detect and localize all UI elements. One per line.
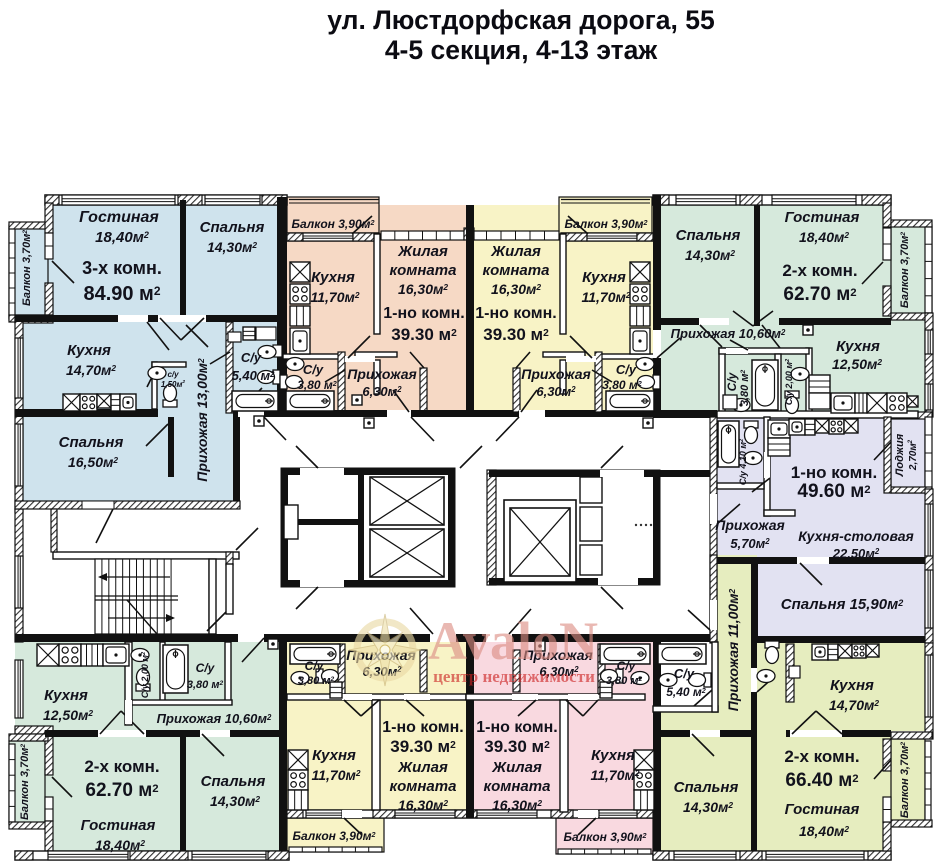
svg-text:Кухня: Кухня bbox=[836, 338, 880, 355]
svg-text:5,40 м2: 5,40 м2 bbox=[232, 368, 276, 383]
svg-text:14,70м2: 14,70м2 bbox=[66, 362, 116, 378]
svg-text:1-но комн.: 1-но комн. bbox=[382, 719, 463, 736]
svg-text:2-х комн.: 2-х комн. bbox=[84, 757, 159, 776]
svg-text:комната: комната bbox=[483, 262, 550, 279]
svg-text:Спальня 15,90м2: Спальня 15,90м2 bbox=[781, 596, 903, 613]
svg-text:16,30м2: 16,30м2 bbox=[398, 797, 448, 813]
svg-text:Прихожая 13,00м2: Прихожая 13,00м2 bbox=[194, 358, 210, 482]
svg-text:1-но комн.: 1-но комн. bbox=[475, 305, 556, 322]
svg-text:центр недвижимости: центр недвижимости bbox=[433, 667, 595, 686]
svg-text:3,80 м2: 3,80 м2 bbox=[739, 370, 751, 407]
svg-text:2,70м2: 2,70м2 bbox=[908, 439, 919, 471]
svg-text:Жилая: Жилая bbox=[491, 759, 542, 776]
svg-text:1-но комн.: 1-но комн. bbox=[791, 463, 878, 482]
svg-text:Гостиная: Гостиная bbox=[785, 801, 860, 818]
svg-text:11,70м2: 11,70м2 bbox=[590, 767, 639, 783]
svg-text:Жилая: Жилая bbox=[490, 243, 541, 260]
svg-text:Спальня: Спальня bbox=[676, 227, 741, 244]
svg-text:12,50м2: 12,50м2 bbox=[832, 356, 882, 372]
svg-text:Кухня: Кухня bbox=[582, 269, 626, 286]
svg-text:Прихожая 10,60м2: Прихожая 10,60м2 bbox=[157, 711, 272, 726]
svg-text:18,40м2: 18,40м2 bbox=[799, 823, 849, 839]
svg-text:Гостиная: Гостиная bbox=[785, 209, 860, 226]
svg-text:3,80 м2: 3,80 м2 bbox=[602, 378, 642, 392]
svg-text:С/у: С/у bbox=[674, 666, 695, 681]
svg-text:С/у: С/у bbox=[196, 661, 216, 675]
svg-text:39.30 м2: 39.30 м2 bbox=[483, 325, 549, 344]
svg-text:1,50м2: 1,50м2 bbox=[161, 379, 186, 389]
svg-text:Кухня-столовая: Кухня-столовая bbox=[798, 528, 914, 544]
svg-text:11,70м2: 11,70м2 bbox=[581, 289, 630, 305]
svg-text:5,70м2: 5,70м2 bbox=[730, 536, 770, 551]
svg-text:С/у: С/у bbox=[725, 371, 739, 391]
svg-text:39.30 м2: 39.30 м2 bbox=[390, 737, 456, 756]
svg-text:1-но комн.: 1-но комн. bbox=[383, 305, 464, 322]
svg-text:Прихожая: Прихожая bbox=[521, 366, 591, 382]
svg-text:Балкон 3,90м2: Балкон 3,90м2 bbox=[291, 217, 374, 231]
svg-text:С/у 2,00 м2: С/у 2,00 м2 bbox=[140, 652, 150, 698]
svg-text:16,30м2: 16,30м2 bbox=[398, 281, 448, 297]
svg-text:3,80 м2: 3,80 м2 bbox=[297, 378, 337, 392]
svg-text:ул. Люстдорфская дорога, 55: ул. Люстдорфская дорога, 55 bbox=[327, 5, 715, 35]
svg-text:Спальня: Спальня bbox=[201, 773, 266, 790]
svg-text:84.90 м2: 84.90 м2 bbox=[83, 283, 160, 305]
svg-text:39.30 м2: 39.30 м2 bbox=[484, 737, 550, 756]
svg-text:6,30м2: 6,30м2 bbox=[362, 384, 402, 399]
svg-text:2-х комн.: 2-х комн. bbox=[784, 747, 859, 766]
svg-text:16,50м2: 16,50м2 bbox=[68, 454, 118, 470]
svg-text:Прихожая: Прихожая bbox=[347, 366, 417, 382]
svg-text:Балкон 3,70м2: Балкон 3,70м2 bbox=[899, 232, 911, 308]
svg-text:Кухня: Кухня bbox=[591, 747, 635, 764]
svg-text:16,30м2: 16,30м2 bbox=[491, 281, 541, 297]
svg-text:комната: комната bbox=[390, 778, 457, 795]
svg-text:С/у 4,10 м2: С/у 4,10 м2 bbox=[738, 439, 748, 485]
svg-text:3,80 м2: 3,80 м2 bbox=[187, 679, 224, 691]
svg-text:Спальня: Спальня bbox=[674, 779, 739, 796]
svg-text:14,30м2: 14,30м2 bbox=[207, 239, 257, 255]
svg-text:Балкон 3,70м2: Балкон 3,70м2 bbox=[899, 742, 911, 818]
svg-text:14,70м2: 14,70м2 bbox=[829, 697, 879, 713]
svg-text:5,40 м2: 5,40 м2 bbox=[666, 685, 706, 699]
svg-text:2-х комн.: 2-х комн. bbox=[782, 261, 857, 280]
svg-text:Спальня: Спальня bbox=[200, 219, 265, 236]
svg-text:3,80 м2: 3,80 м2 bbox=[298, 675, 335, 687]
svg-text:11,70м2: 11,70м2 bbox=[310, 289, 359, 305]
svg-text:С/у: С/у bbox=[305, 659, 325, 673]
svg-text:66.40 м2: 66.40 м2 bbox=[785, 770, 858, 791]
svg-text:49.60 м2: 49.60 м2 bbox=[797, 481, 870, 502]
svg-text:Жилая: Жилая bbox=[397, 759, 448, 776]
svg-text:Лоджия: Лоджия bbox=[894, 433, 906, 477]
svg-text:Кухня: Кухня bbox=[67, 342, 111, 359]
svg-text:6,30м2: 6,30м2 bbox=[536, 384, 576, 399]
svg-text:AvaloN: AvaloN bbox=[428, 611, 598, 671]
svg-text:39.30 м2: 39.30 м2 bbox=[391, 325, 457, 344]
svg-text:комната: комната bbox=[390, 262, 457, 279]
svg-text:Балкон 3,90м2: Балкон 3,90м2 bbox=[292, 829, 375, 843]
svg-text:Кухня: Кухня bbox=[830, 677, 874, 694]
svg-text:Прихожая 11,00м2: Прихожая 11,00м2 bbox=[725, 588, 741, 711]
svg-text:62.70 м2: 62.70 м2 bbox=[85, 780, 158, 801]
svg-text:18,40м2: 18,40м2 bbox=[799, 229, 849, 245]
svg-text:Балкон 3,70м2: Балкон 3,70м2 bbox=[19, 744, 31, 820]
svg-text:18,40м2: 18,40м2 bbox=[95, 837, 145, 853]
svg-text:Прихожая: Прихожая bbox=[715, 517, 785, 533]
svg-text:14,30м2: 14,30м2 bbox=[210, 793, 260, 809]
svg-text:с/у: с/у bbox=[167, 370, 179, 379]
svg-text:Гостиная: Гостиная bbox=[81, 817, 156, 834]
svg-text:18,40м2: 18,40м2 bbox=[95, 229, 149, 246]
svg-text:Гостиная: Гостиная bbox=[79, 209, 159, 226]
svg-text:62.70 м2: 62.70 м2 bbox=[783, 284, 856, 305]
svg-text:11,70м2: 11,70м2 bbox=[311, 767, 360, 783]
svg-text:Кухня: Кухня bbox=[311, 269, 355, 286]
svg-text:комната: комната bbox=[484, 778, 551, 795]
svg-text:3-х комн.: 3-х комн. bbox=[82, 258, 162, 278]
svg-text:Балкон 3,90м2: Балкон 3,90м2 bbox=[564, 217, 647, 231]
svg-text:Прихожая 10,60м2: Прихожая 10,60м2 bbox=[671, 326, 786, 341]
svg-text:С/у: С/у bbox=[617, 659, 637, 673]
svg-text:14,30м2: 14,30м2 bbox=[683, 799, 733, 815]
svg-text:16,30м2: 16,30м2 bbox=[492, 797, 542, 813]
svg-text:С/у: С/у bbox=[241, 350, 262, 365]
svg-text:Жилая: Жилая bbox=[397, 243, 448, 260]
svg-text:22,50м2: 22,50м2 bbox=[832, 546, 880, 561]
svg-text:С/у 2,00 м2: С/у 2,00 м2 bbox=[784, 359, 794, 405]
svg-text:С/у: С/у bbox=[616, 362, 637, 377]
svg-text:14,30м2: 14,30м2 bbox=[685, 247, 735, 263]
svg-text:Кухня: Кухня bbox=[312, 747, 356, 764]
svg-text:12,50м2: 12,50м2 bbox=[43, 707, 93, 723]
svg-text:1-но комн.: 1-но комн. bbox=[476, 719, 557, 736]
svg-text:Спальня: Спальня bbox=[59, 434, 124, 451]
svg-text:Балкон 3,70м2: Балкон 3,70м2 bbox=[21, 230, 33, 306]
svg-text:3,80 м2: 3,80 м2 bbox=[606, 675, 643, 687]
svg-text:Кухня: Кухня bbox=[44, 687, 88, 704]
svg-text:С/у: С/у bbox=[303, 362, 324, 377]
svg-text:Балкон 3,90м2: Балкон 3,90м2 bbox=[563, 830, 646, 844]
svg-text:4-5 секция, 4-13 этаж: 4-5 секция, 4-13 этаж bbox=[385, 35, 659, 65]
